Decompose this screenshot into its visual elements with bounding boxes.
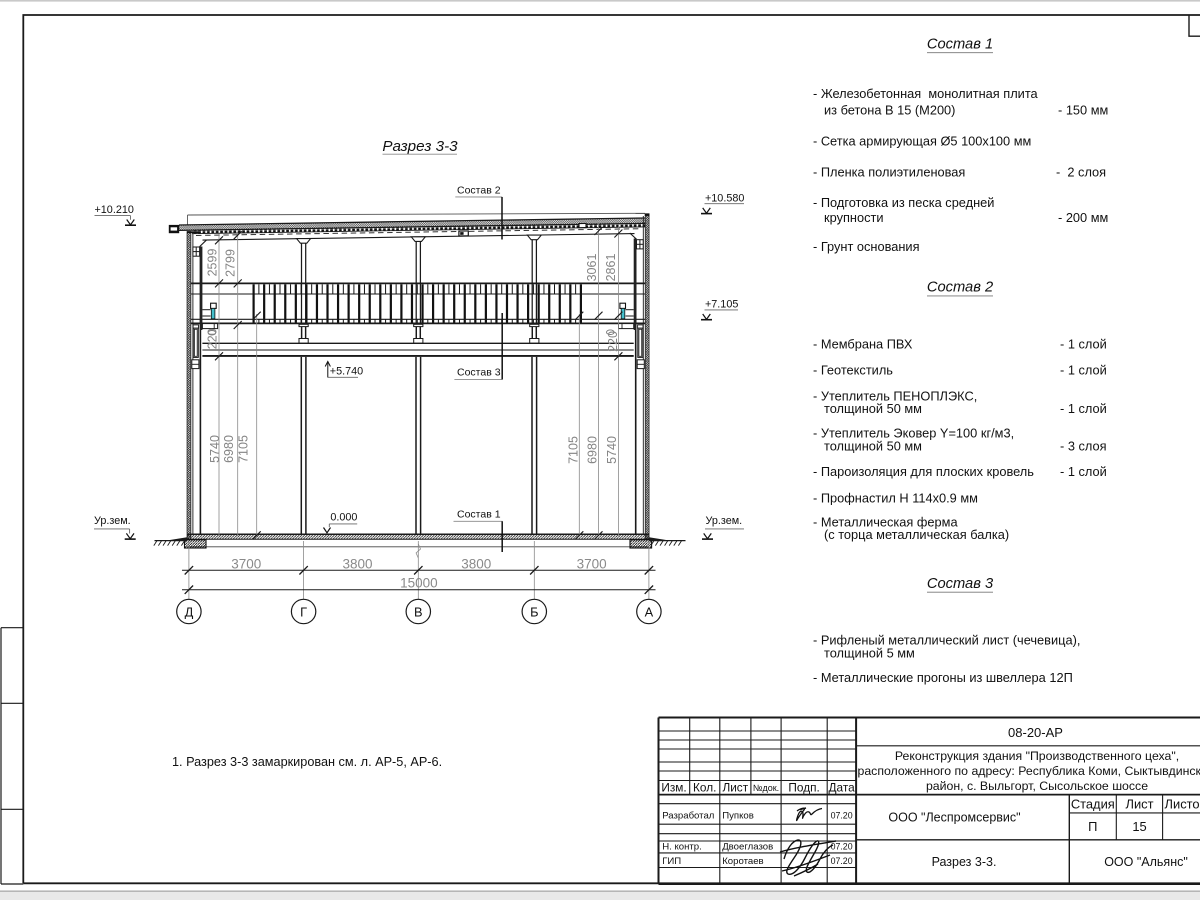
- svg-text:- 3 слоя: - 3 слоя: [1060, 439, 1107, 454]
- svg-text:Пупков: Пупков: [722, 810, 754, 821]
- svg-text:Дата: Дата: [829, 780, 856, 794]
- svg-text:ООО "Альянс": ООО "Альянс": [1104, 855, 1188, 869]
- svg-text:Н. контр.: Н. контр.: [662, 842, 702, 853]
- svg-text:Б: Б: [530, 604, 538, 619]
- svg-text:+10.580: +10.580: [705, 193, 744, 205]
- svg-text:+5.740: +5.740: [330, 366, 363, 378]
- svg-text:- Пароизоляция для плоских кро: - Пароизоляция для плоских кровель: [813, 464, 1034, 479]
- svg-text:7105: 7105: [237, 435, 251, 463]
- svg-text:15: 15: [1132, 819, 1146, 834]
- svg-text:Подп.: Подп.: [788, 780, 819, 794]
- svg-text:П: П: [1088, 819, 1097, 834]
- svg-text:2599: 2599: [205, 249, 219, 277]
- svg-text:Состав 3: Состав 3: [457, 366, 501, 378]
- svg-text:Лист: Лист: [722, 780, 748, 794]
- svg-text:- 1 слой: - 1 слой: [1060, 401, 1107, 416]
- svg-text:Стадия: Стадия: [1071, 797, 1115, 812]
- svg-text:- 1 слой: - 1 слой: [1060, 337, 1107, 352]
- svg-text:Ур.зем.: Ур.зем.: [706, 515, 743, 527]
- svg-text:3800: 3800: [342, 557, 372, 572]
- svg-text:А: А: [645, 604, 654, 619]
- svg-text:Реконструкция здания "Производ: Реконструкция здания "Производственного …: [895, 749, 1179, 763]
- svg-text:- Геотекстиль: - Геотекстиль: [813, 363, 893, 378]
- svg-text:Состав 1: Состав 1: [927, 36, 993, 52]
- svg-text:6980: 6980: [222, 435, 236, 463]
- svg-text:Разрез 3-3: Разрез 3-3: [382, 138, 458, 155]
- svg-text:- 1 слой: - 1 слой: [1060, 464, 1107, 479]
- svg-text:из бетона В 15 (М200): из бетона В 15 (М200): [824, 103, 955, 118]
- svg-text:08-20-АР: 08-20-АР: [1008, 725, 1063, 740]
- svg-text:07.20: 07.20: [831, 810, 853, 820]
- svg-text:Лист: Лист: [1125, 797, 1153, 812]
- svg-text:Ур.зем.: Ур.зем.: [94, 515, 131, 527]
- svg-text:+10.210: +10.210: [95, 204, 134, 216]
- svg-text:- Пленка полиэтиленовая: - Пленка полиэтиленовая: [813, 165, 965, 180]
- svg-text:толщиной 50 мм: толщиной 50 мм: [824, 439, 922, 454]
- svg-text:+7.105: +7.105: [705, 299, 738, 311]
- svg-text:3700: 3700: [231, 557, 261, 572]
- svg-text:район, с. Выльгорт, Сысольское: район, с. Выльгорт, Сысольское шоссе: [926, 779, 1148, 793]
- svg-text:- 2 слоя: - 2 слоя: [1056, 165, 1106, 180]
- svg-text:2799: 2799: [224, 249, 238, 277]
- svg-text:3061: 3061: [585, 254, 599, 282]
- svg-text:3700: 3700: [577, 557, 607, 572]
- svg-text:Состав 3: Состав 3: [927, 576, 994, 592]
- svg-text:- 200 мм: - 200 мм: [1058, 210, 1108, 225]
- svg-text:5740: 5740: [605, 436, 619, 464]
- svg-text:0.000: 0.000: [330, 511, 357, 523]
- svg-text:толщиной 5 мм: толщиной 5 мм: [824, 646, 915, 661]
- svg-text:- Сетка армирующая Ø5 100х100: - Сетка армирующая Ø5 100х100 мм: [813, 134, 1031, 149]
- svg-text:ГИП: ГИП: [662, 856, 681, 867]
- svg-text:7105: 7105: [566, 436, 580, 464]
- svg-text:220: 220: [206, 328, 220, 349]
- svg-text:- Профнастил Н 114х0.9 мм: - Профнастил Н 114х0.9 мм: [813, 490, 978, 505]
- svg-text:- Подготовка из песка средней: - Подготовка из песка средней: [813, 195, 994, 210]
- svg-text:Д: Д: [185, 604, 194, 619]
- svg-text:15000: 15000: [400, 575, 438, 590]
- svg-text:Кол.: Кол.: [693, 780, 716, 794]
- svg-text:- 1 слой: - 1 слой: [1060, 363, 1107, 378]
- svg-text:07.20: 07.20: [831, 842, 853, 852]
- svg-text:07.20: 07.20: [831, 856, 853, 866]
- svg-text:6980: 6980: [586, 436, 600, 464]
- svg-text:толщиной 50 мм: толщиной 50 мм: [824, 401, 922, 416]
- svg-text:крупности: крупности: [824, 210, 884, 225]
- svg-text:- 150 мм: - 150 мм: [1058, 103, 1108, 118]
- svg-text:3800: 3800: [461, 557, 491, 572]
- svg-text:Состав 2: Состав 2: [457, 184, 501, 196]
- svg-text:Листов: Листов: [1165, 797, 1200, 812]
- svg-text:Состав 2: Состав 2: [927, 280, 993, 296]
- svg-text:1. Разрез 3-3 замаркирован см.: 1. Разрез 3-3 замаркирован см. л. АР-5, …: [172, 755, 442, 769]
- svg-text:ООО "Леспромсервис": ООО "Леспромсервис": [888, 811, 1020, 825]
- svg-text:В: В: [414, 604, 423, 619]
- svg-text:Коротаев: Коротаев: [722, 856, 763, 867]
- svg-text:5740: 5740: [208, 435, 222, 463]
- svg-text:- Мембрана ПВХ: - Мембрана ПВХ: [813, 337, 913, 352]
- svg-text:- Металлические прогоны из шве: - Металлические прогоны из швеллера 12П: [813, 670, 1073, 685]
- svg-text:- Железобетонная монолитная п: - Железобетонная монолитная плита: [813, 86, 1039, 101]
- svg-text:- Грунт основания: - Грунт основания: [813, 239, 920, 254]
- svg-text:Г: Г: [300, 604, 307, 619]
- svg-text:Разрез 3-3.: Разрез 3-3.: [932, 855, 997, 869]
- svg-text:расположенного по адресу: Респ: расположенного по адресу: Республика Ком…: [858, 764, 1200, 778]
- svg-text:(с торца металлическая балка): (с торца металлическая балка): [824, 527, 1009, 542]
- svg-text:Состав 1: Состав 1: [457, 508, 501, 520]
- svg-text:№док.: №док.: [753, 783, 779, 793]
- svg-text:2861: 2861: [604, 254, 618, 282]
- svg-text:Изм.: Изм.: [661, 780, 686, 794]
- svg-text:220: 220: [606, 331, 620, 352]
- svg-text:Разработал: Разработал: [662, 810, 714, 821]
- svg-text:Двоеглазов: Двоеглазов: [722, 842, 773, 853]
